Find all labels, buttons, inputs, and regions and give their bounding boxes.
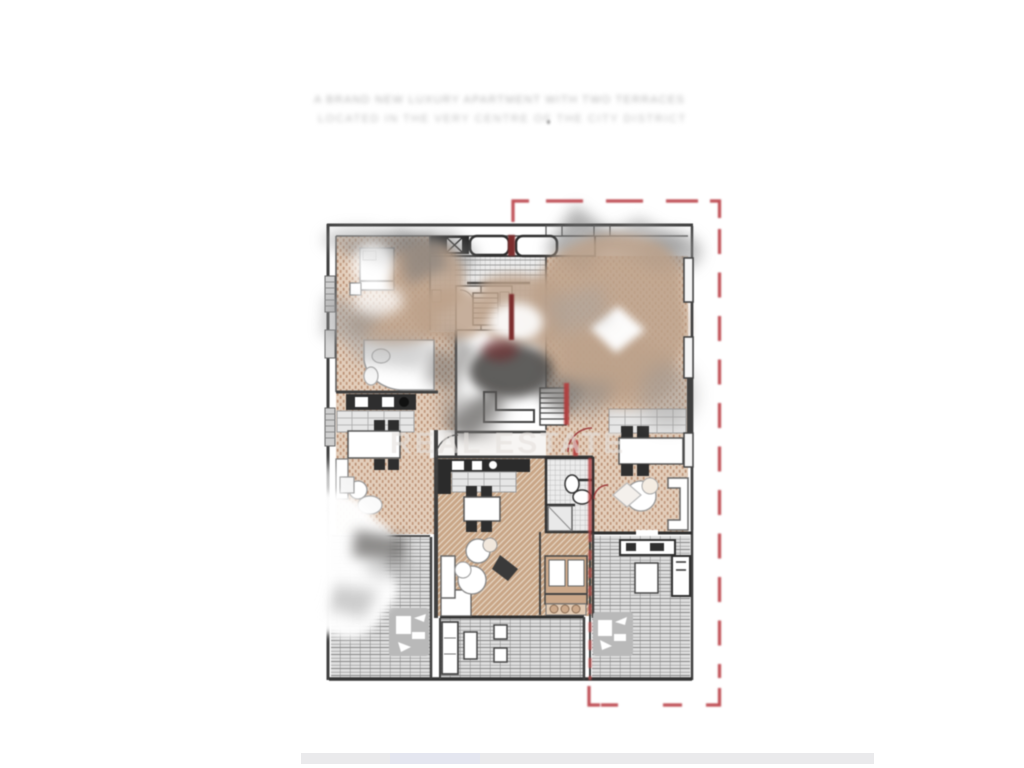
svg-text:REAL ESTATE: REAL ESTATE (390, 427, 626, 460)
